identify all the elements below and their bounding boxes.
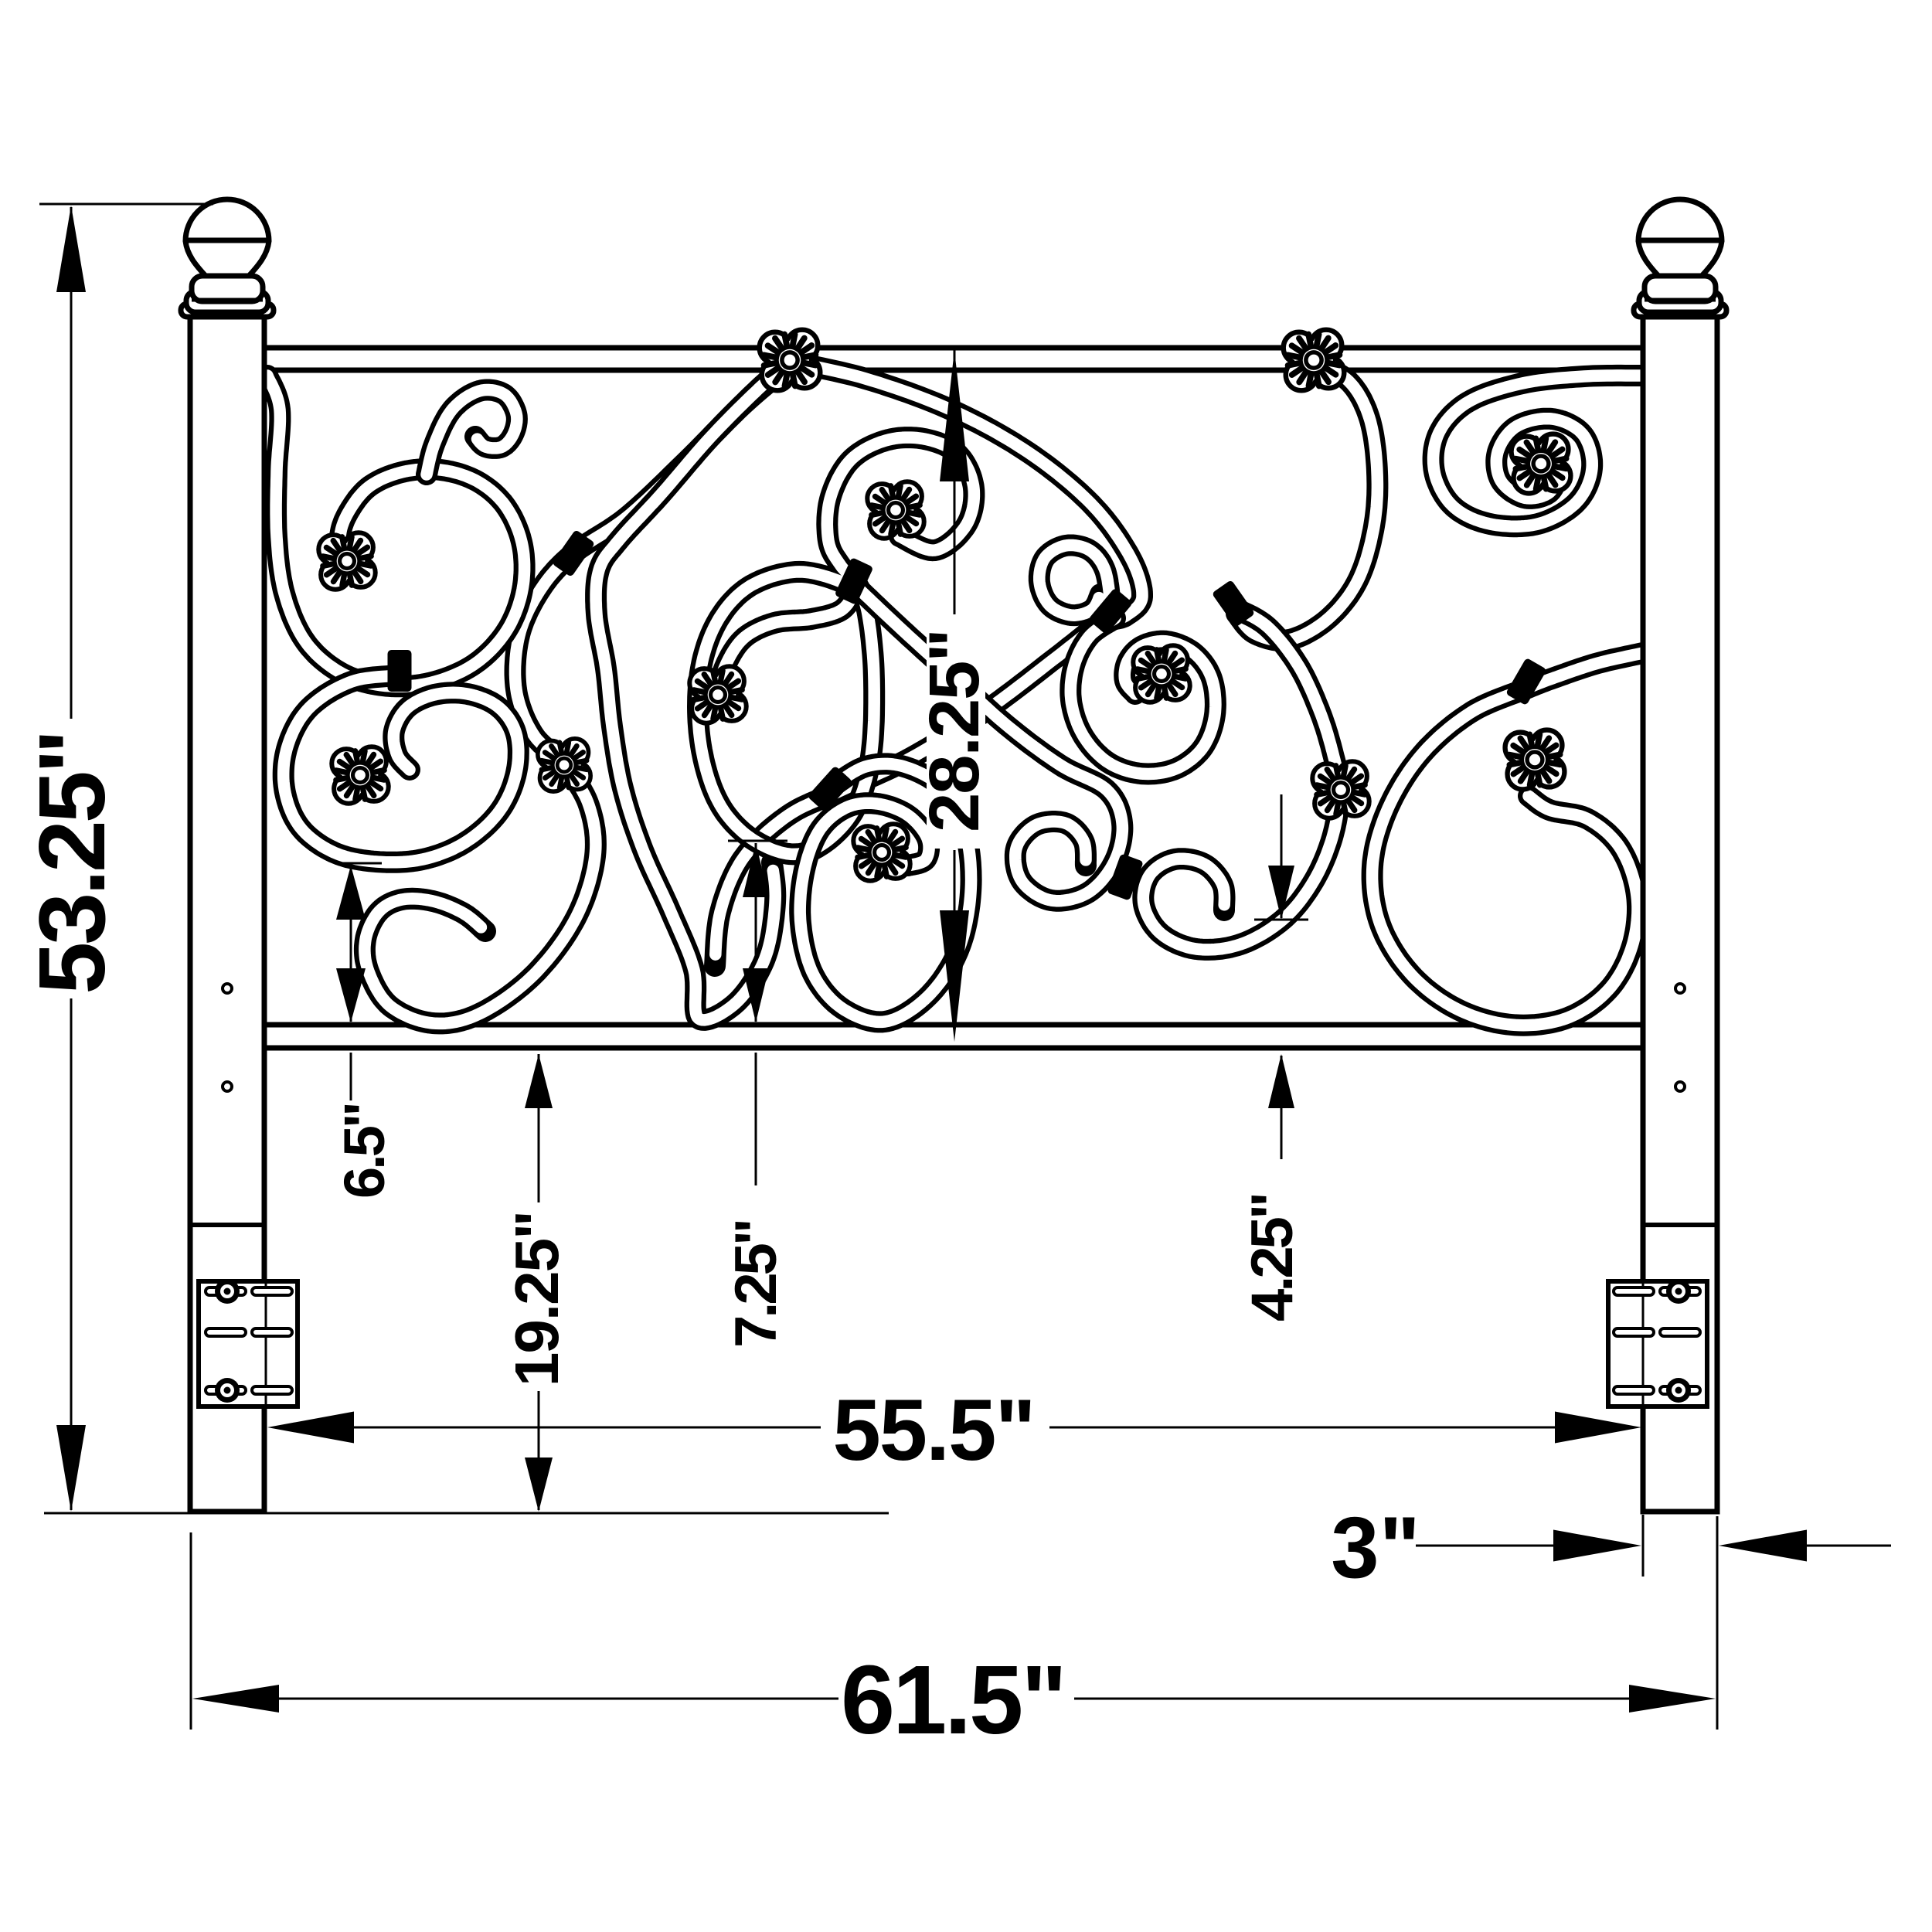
svg-text:19.25": 19.25" <box>502 1212 571 1386</box>
svg-text:6.5": 6.5" <box>332 1104 396 1199</box>
svg-text:7.25": 7.25" <box>723 1221 789 1348</box>
svg-text:53.25": 53.25" <box>19 732 124 994</box>
svg-text:4.25": 4.25" <box>1240 1195 1305 1321</box>
svg-text:61.5": 61.5" <box>841 1645 1065 1754</box>
svg-text:55.5": 55.5" <box>832 1382 1034 1478</box>
svg-text:28.25": 28.25" <box>915 630 994 832</box>
svg-text:3": 3" <box>1331 1499 1420 1596</box>
